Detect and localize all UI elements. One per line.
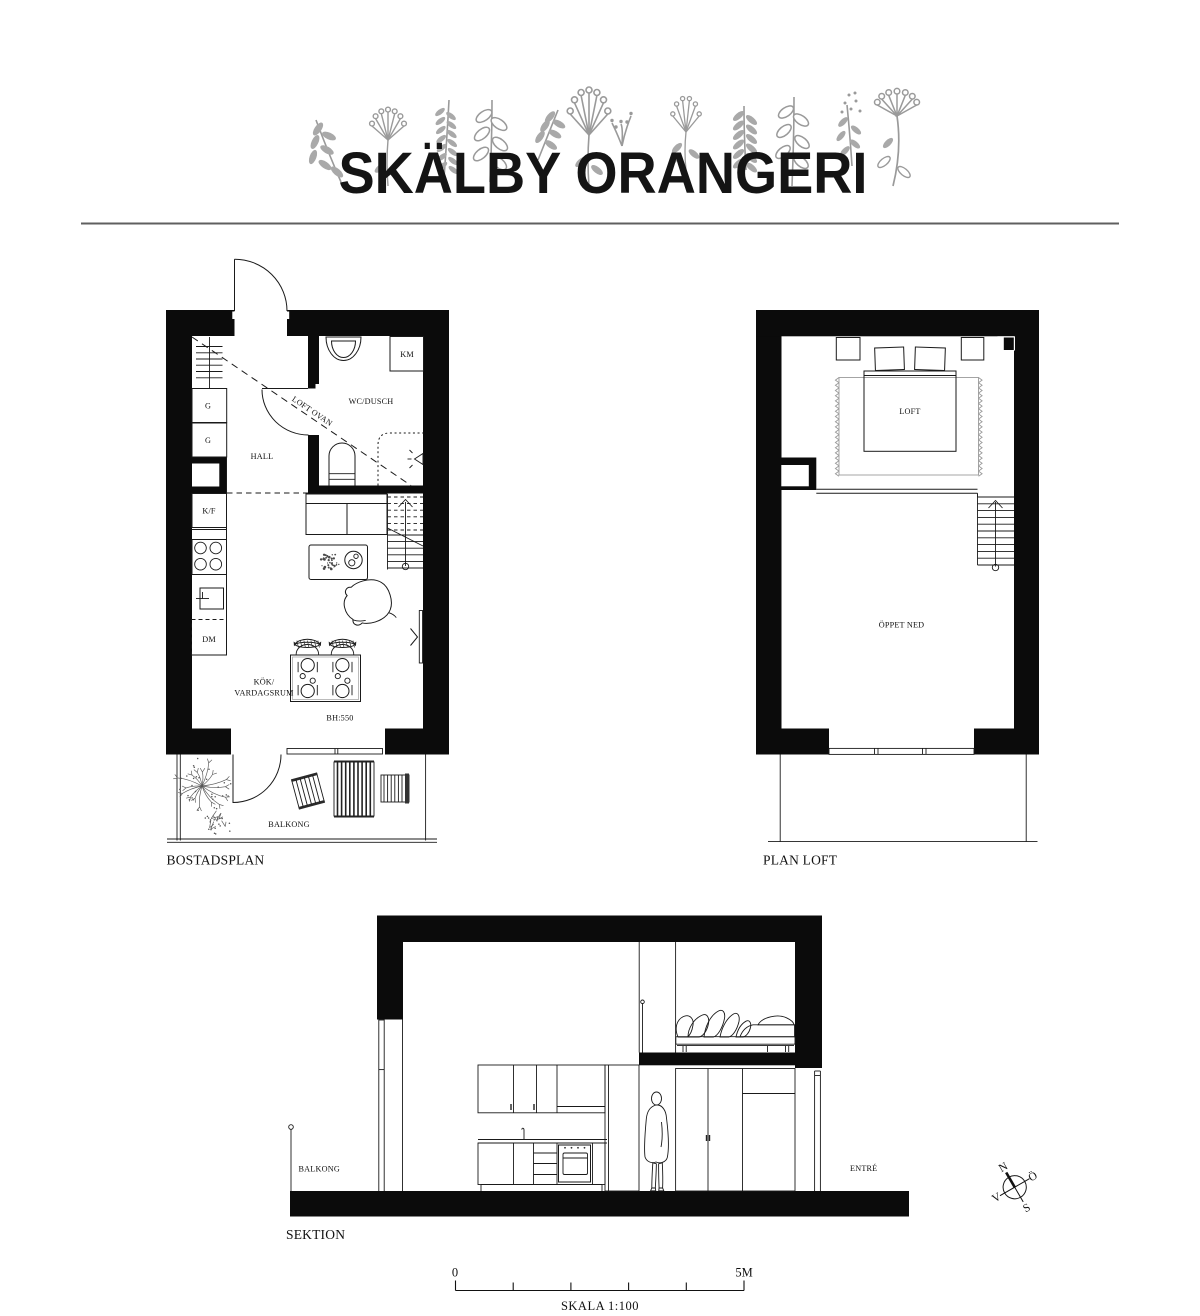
svg-text:SKÄLBY ORANGERI: SKÄLBY ORANGERI <box>339 141 868 206</box>
svg-text:VARDAGSRUM: VARDAGSRUM <box>234 689 294 698</box>
svg-text:HALL: HALL <box>251 452 274 461</box>
svg-text:BALKONG: BALKONG <box>299 1165 340 1174</box>
svg-text:G: G <box>205 402 211 411</box>
svg-text:DM: DM <box>202 635 216 644</box>
svg-text:LOFT: LOFT <box>899 407 920 416</box>
svg-text:5M: 5M <box>735 1266 752 1280</box>
svg-text:KÖK/: KÖK/ <box>254 678 275 687</box>
svg-text:BOSTADSPLAN: BOSTADSPLAN <box>167 853 265 868</box>
svg-text:BALKONG: BALKONG <box>268 820 309 829</box>
svg-text:SKALA 1:100: SKALA 1:100 <box>561 1299 639 1313</box>
svg-text:K/F: K/F <box>202 507 216 516</box>
svg-text:ENTRÉ: ENTRÉ <box>850 1163 877 1173</box>
svg-text:PLAN LOFT: PLAN LOFT <box>763 853 838 868</box>
svg-text:BH:550: BH:550 <box>326 714 353 723</box>
svg-text:KM: KM <box>400 350 414 359</box>
svg-text:SEKTION: SEKTION <box>286 1227 345 1242</box>
svg-text:0: 0 <box>452 1266 458 1280</box>
svg-text:WC/DUSCH: WC/DUSCH <box>349 397 394 406</box>
svg-text:ÖPPET NED: ÖPPET NED <box>879 621 925 630</box>
svg-text:G: G <box>205 436 211 445</box>
